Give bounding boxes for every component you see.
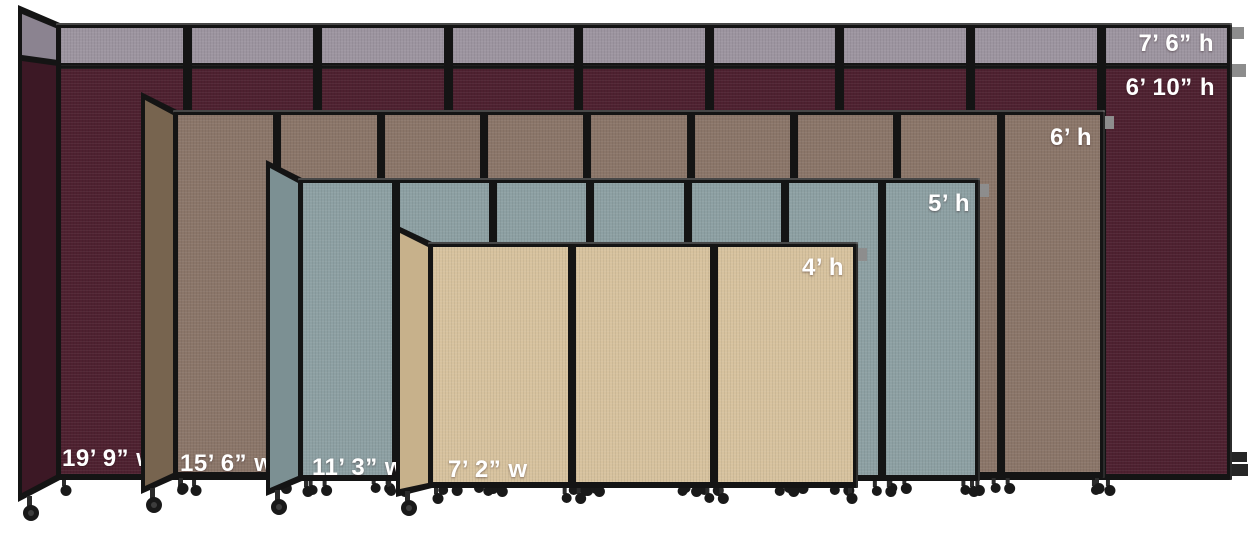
caster-hub-icon — [406, 505, 412, 511]
fabric-panel — [576, 247, 711, 482]
fabric-panel — [433, 247, 568, 482]
fabric-panel — [718, 247, 853, 482]
return-panel-fabric — [400, 233, 428, 489]
divider-sand: 4’ h 7’ 2” w — [0, 0, 1248, 542]
caster-stem-icon — [405, 491, 410, 501]
caster-wheel-icon — [847, 493, 858, 504]
caster-wheel-icon — [575, 493, 586, 504]
mounting-bracket-icon — [858, 248, 867, 261]
caster-wheel-icon — [433, 493, 444, 504]
width-label-7ft2: 7’ 2” w — [448, 457, 528, 482]
room-divider-size-comparison-image: 7’ 6” h 6’ 10” h 19’ 9” w 6’ h 15’ 6” w … — [0, 0, 1248, 542]
caster-wheel-icon — [562, 493, 572, 503]
caster-wheel-icon — [718, 493, 729, 504]
return-panel-frame — [396, 225, 432, 497]
caster-wheel-icon — [401, 500, 417, 516]
height-label-4ft: 4’ h — [760, 255, 844, 280]
caster-wheel-icon — [704, 493, 714, 503]
sand-panel-row — [433, 247, 853, 482]
